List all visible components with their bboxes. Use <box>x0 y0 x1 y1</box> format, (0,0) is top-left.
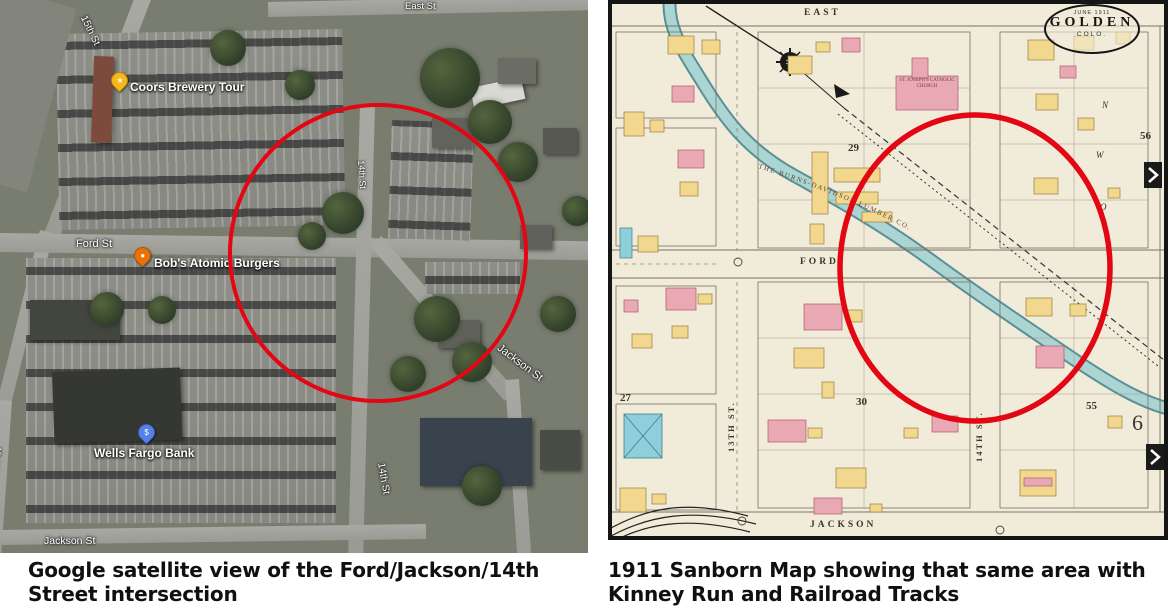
poi-label-wells-fargo-bank[interactable]: Wells Fargo Bank <box>94 446 194 460</box>
sanborn-map-panel: THE BURNS-DAVIDSON LUMBER CO. JUNE 1911 … <box>608 0 1168 540</box>
house <box>540 430 580 470</box>
wells-fargo-building <box>52 368 182 444</box>
tree <box>562 196 588 226</box>
tree <box>148 296 176 324</box>
tree <box>462 466 502 506</box>
tree <box>540 296 576 332</box>
left-caption: Google satellite view of the Ford/Jackso… <box>28 558 588 607</box>
tree <box>210 30 246 66</box>
pin-glyph: ● <box>140 252 145 260</box>
pin-glyph: $ <box>144 429 148 437</box>
highlight-circle-left <box>228 103 528 403</box>
street-label-jackson-st-bottom: Jackson St <box>44 535 95 547</box>
pin-glyph: ★ <box>116 77 123 85</box>
house <box>498 58 536 84</box>
street-label-east-st: East St <box>405 1 436 12</box>
highlight-circle-right <box>608 0 1168 540</box>
satellite-map-panel: East St 15th St 15th St Ford St 14th St … <box>0 0 588 553</box>
house <box>543 128 577 154</box>
tree <box>420 48 480 108</box>
street-label-ford-st: Ford St <box>76 238 112 250</box>
tree <box>285 70 315 100</box>
building-red-roof <box>91 56 114 143</box>
street-label-14th-st-bottom: 14th St <box>375 462 391 495</box>
tree <box>90 292 124 326</box>
poi-label-coors-brewery-tour[interactable]: Coors Brewery Tour <box>130 80 244 94</box>
right-caption: 1911 Sanborn Map showing that same area … <box>608 558 1168 607</box>
